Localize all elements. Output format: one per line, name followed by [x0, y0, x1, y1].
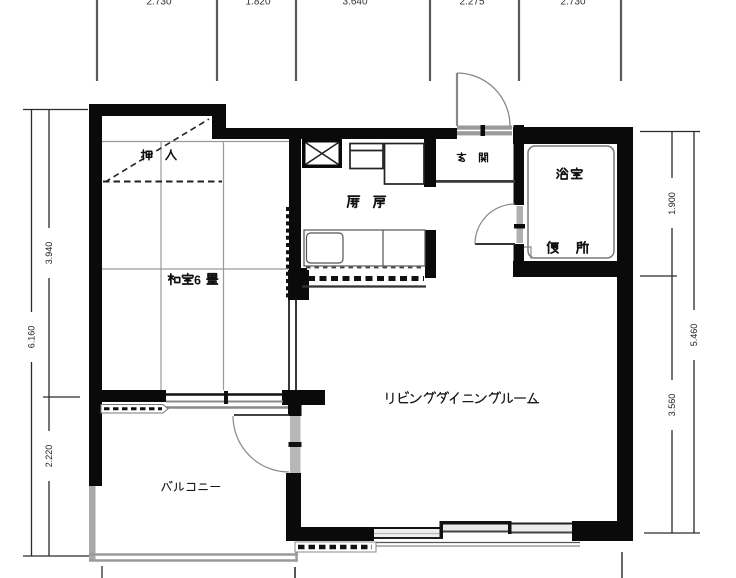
svg-text:2.730: 2.730 — [560, 0, 585, 8]
svg-text:1.900: 1.900 — [667, 192, 677, 215]
svg-text:3.940: 3.940 — [44, 242, 54, 265]
svg-text:6.160: 6.160 — [27, 326, 37, 349]
svg-text:2.220: 2.220 — [44, 445, 54, 468]
svg-text:2.730: 2.730 — [146, 0, 171, 8]
svg-text:6: 6 — [194, 274, 201, 288]
svg-text:1.820: 1.820 — [245, 0, 270, 8]
svg-text:3.640: 3.640 — [342, 0, 367, 8]
svg-text:3.560: 3.560 — [667, 394, 677, 417]
svg-text:2.275: 2.275 — [459, 0, 484, 8]
svg-text:5.460: 5.460 — [689, 324, 699, 347]
